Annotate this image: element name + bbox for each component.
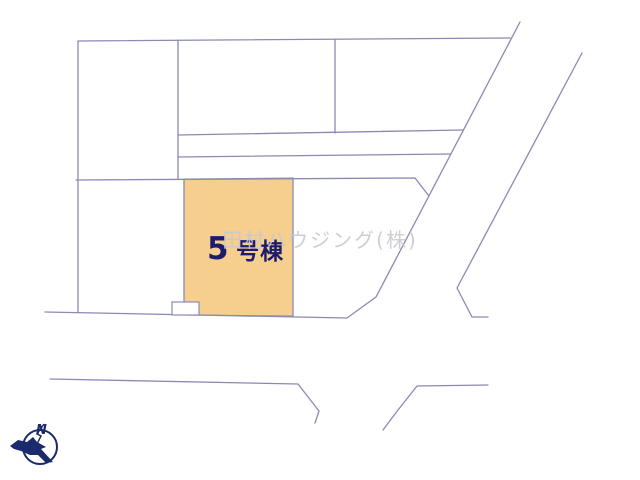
lower-road-edge-left xyxy=(50,379,319,423)
company-watermark: 田村ハウジング(株) xyxy=(222,228,418,252)
site-plan-canvas: 5 号棟 田村ハウジング(株) N xyxy=(0,0,640,480)
site-plan-drawing: 5 号棟 田村ハウジング(株) N xyxy=(0,0,640,480)
strip-line-lower xyxy=(178,154,450,157)
compass-icon: N xyxy=(10,423,57,464)
strip-line-upper xyxy=(178,130,463,135)
parcel-notch xyxy=(172,302,199,315)
north-boundary-line xyxy=(78,38,510,41)
diagonal-road-east-edge xyxy=(457,53,582,317)
boundary-lines xyxy=(45,22,582,430)
compass-bird xyxy=(10,437,53,463)
lower-road-edge-right xyxy=(383,385,488,430)
compass-north-label: N xyxy=(36,423,47,438)
